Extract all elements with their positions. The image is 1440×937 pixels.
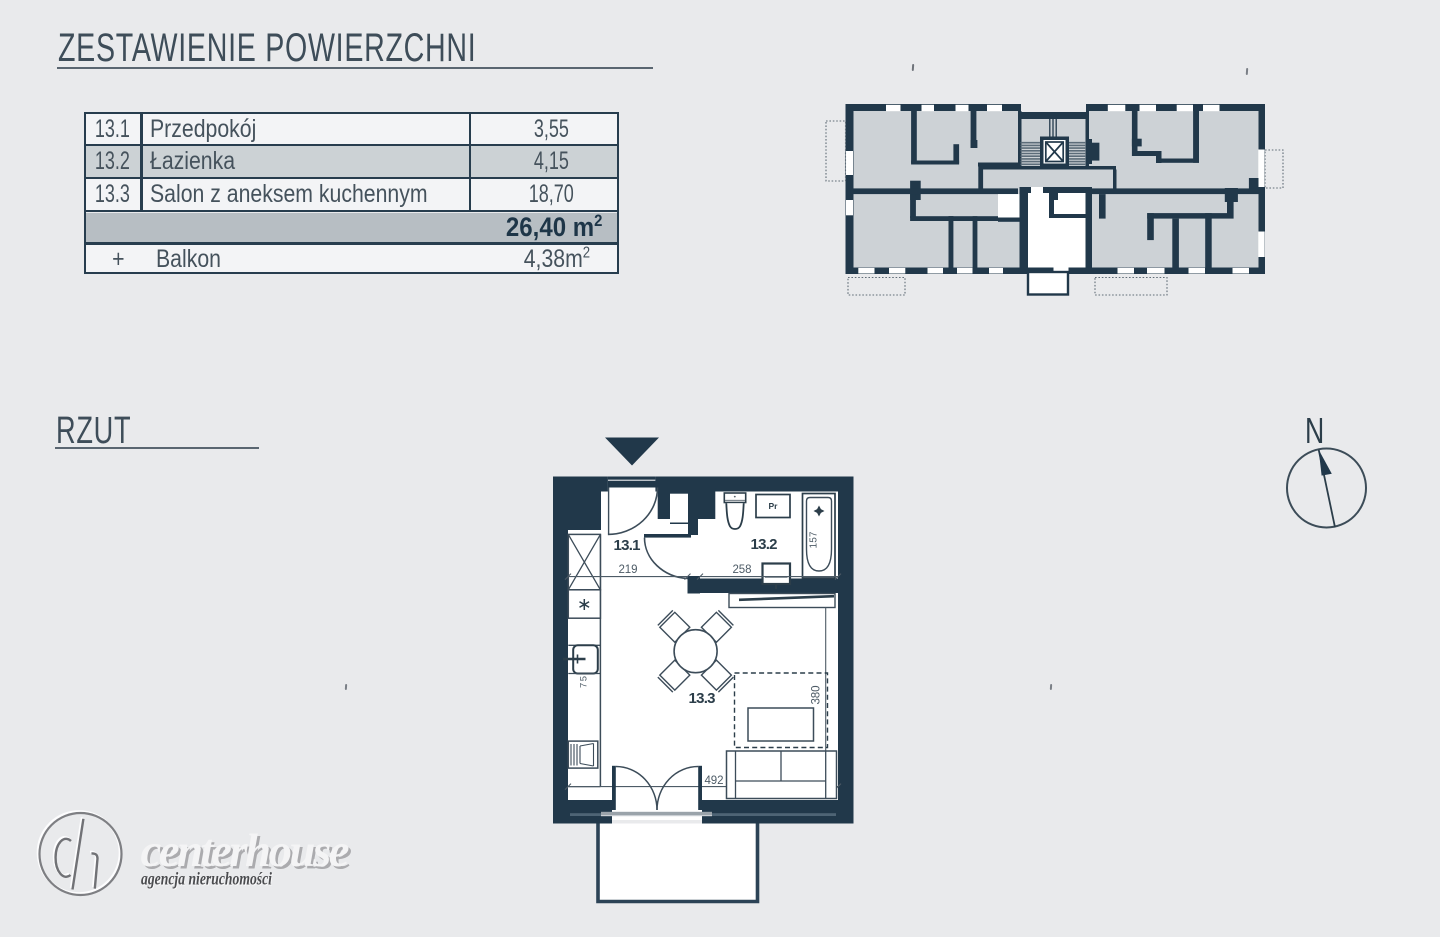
svg-text:258: 258	[733, 564, 752, 576]
svg-text:492: 492	[705, 775, 724, 787]
svg-text:13.3: 13.3	[689, 690, 716, 707]
svg-text:Pr: Pr	[769, 501, 779, 511]
svg-text:75: 75	[579, 676, 590, 688]
svg-text:13.1: 13.1	[614, 537, 641, 554]
svg-text:380: 380	[811, 686, 823, 705]
svg-text:N: N	[1305, 410, 1324, 451]
svg-text:157: 157	[809, 531, 820, 548]
svg-text:13.2: 13.2	[751, 536, 778, 553]
svg-text:agencja nieruchomości: agencja nieruchomości	[141, 870, 272, 889]
svg-text:219: 219	[619, 564, 638, 576]
